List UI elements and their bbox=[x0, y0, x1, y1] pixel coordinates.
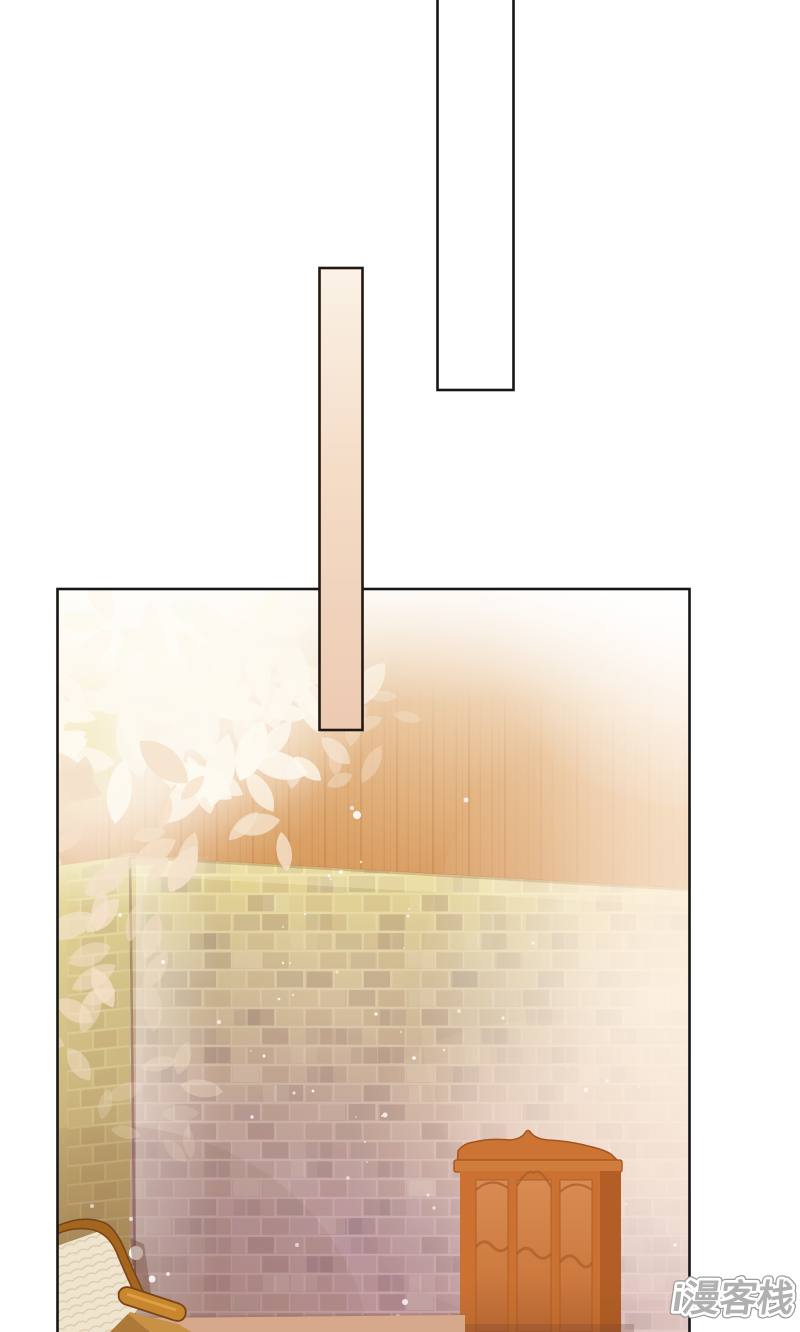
svg-text:i漫客栈: i漫客栈 bbox=[670, 1277, 797, 1319]
